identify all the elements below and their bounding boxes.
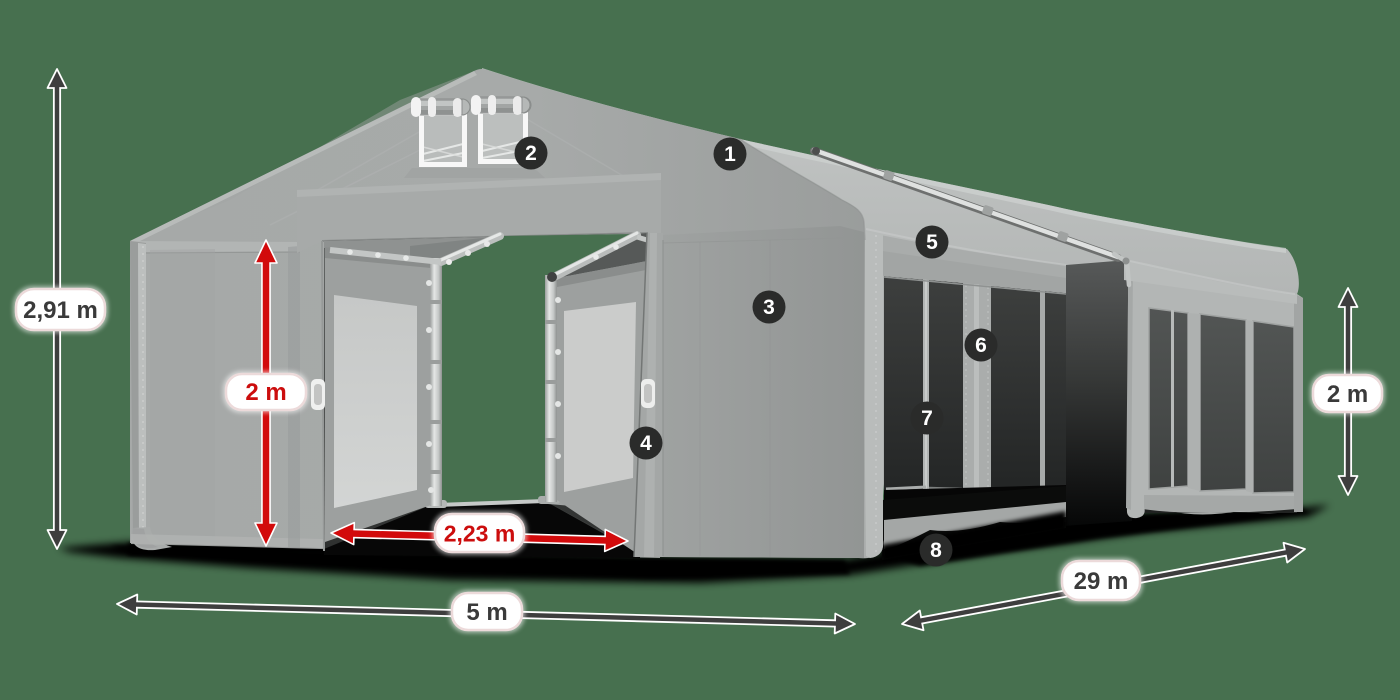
svg-text:29 m: 29 m (1074, 568, 1129, 595)
svg-text:6: 6 (975, 334, 987, 357)
svg-text:8: 8 (930, 539, 942, 562)
svg-text:5: 5 (926, 231, 938, 254)
svg-text:2 m: 2 m (245, 379, 286, 406)
svg-text:2: 2 (525, 142, 537, 165)
svg-text:3: 3 (763, 296, 775, 319)
svg-text:4: 4 (640, 432, 652, 455)
svg-text:7: 7 (921, 407, 933, 430)
svg-text:1: 1 (724, 143, 736, 166)
svg-text:2 m: 2 m (1327, 381, 1368, 408)
svg-text:2,91 m: 2,91 m (23, 297, 98, 324)
svg-text:2,23 m: 2,23 m (444, 521, 516, 547)
svg-text:5 m: 5 m (466, 599, 507, 626)
